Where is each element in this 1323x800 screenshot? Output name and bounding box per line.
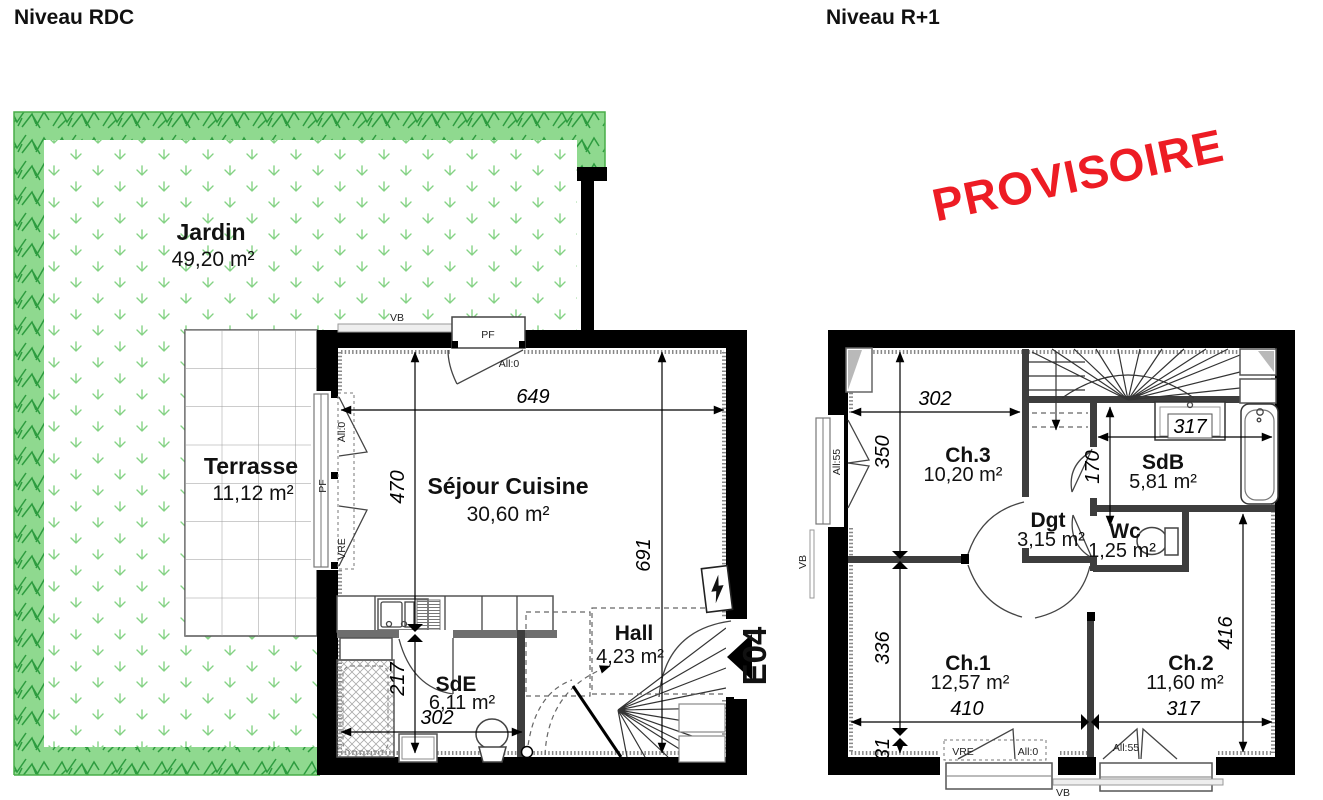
garden-wall-cap bbox=[577, 167, 607, 181]
hedge-top bbox=[14, 112, 605, 140]
jardin-area: 49,20 m² bbox=[172, 248, 255, 271]
sejour-label: Séjour Cuisine bbox=[427, 473, 588, 499]
shower bbox=[337, 660, 394, 757]
sde-niche bbox=[340, 638, 392, 660]
level-title-r1: Niveau R+1 bbox=[826, 6, 940, 30]
terrasse-area: 11,12 m² bbox=[212, 482, 293, 505]
dim-410: 410 bbox=[950, 698, 983, 720]
entry-cabinet-1 bbox=[679, 704, 725, 732]
hedge-left bbox=[14, 140, 44, 775]
dim-416: 416 bbox=[1215, 615, 1237, 649]
vb-left-label: VB bbox=[797, 555, 809, 569]
sdb-area: 5,81 m² bbox=[1129, 471, 1197, 493]
dim-470: 470 bbox=[387, 470, 409, 503]
stair-newel bbox=[522, 747, 533, 758]
all0-left-label: All:0 bbox=[336, 422, 348, 443]
all55-left-label: All:55 bbox=[831, 449, 843, 475]
floorplan-sheet: Niveau RDC Niveau R+1 bbox=[0, 0, 1323, 800]
garden-wall bbox=[581, 181, 594, 330]
sde-area: 6,11 m² bbox=[429, 692, 496, 714]
toilet-rdc bbox=[476, 719, 508, 749]
electrical-panel bbox=[701, 566, 732, 613]
vb-vent-top bbox=[338, 324, 452, 332]
sdb-wc-wall bbox=[1093, 505, 1275, 512]
floorplan-drawing: VB PF All:0 All:0 PF bbox=[0, 0, 1323, 800]
dim-691: 691 bbox=[633, 538, 655, 571]
vb-bottom-label: VB bbox=[1056, 787, 1070, 799]
hall-area: 4,23 m² bbox=[596, 646, 664, 668]
dim-317-sdb: 317 bbox=[1173, 416, 1207, 438]
jardin-label: Jardin bbox=[176, 219, 245, 245]
ch1-area: 12,57 m² bbox=[931, 672, 1010, 694]
r1-plan: All:55 VB VRE All:0 All:55 VB bbox=[797, 330, 1295, 799]
ch3-dgt-wall bbox=[1022, 349, 1029, 497]
sejour-area: 30,60 m² bbox=[467, 503, 550, 526]
vb-vent-left bbox=[810, 530, 814, 598]
wc-area: 1,25 m² bbox=[1088, 540, 1156, 562]
dim-170: 170 bbox=[1082, 450, 1104, 483]
vre-ch1-label: VRE bbox=[952, 746, 974, 758]
wc-side-wall bbox=[1182, 511, 1189, 572]
entry-cabinet-2 bbox=[679, 736, 725, 762]
dim-317-ch2: 317 bbox=[1166, 698, 1200, 720]
all0-ch1-label: All:0 bbox=[1018, 746, 1039, 758]
sdb-wall bbox=[1090, 403, 1097, 447]
dim-350: 350 bbox=[872, 435, 894, 468]
washing-machine bbox=[399, 734, 437, 762]
ch3-ch1-wall bbox=[848, 556, 968, 563]
terrasse-label: Terrasse bbox=[204, 453, 298, 479]
rdc-plan: VB PF All:0 All:0 PF bbox=[14, 112, 773, 775]
level-title-rdc: Niveau RDC bbox=[14, 6, 134, 30]
shelf-right bbox=[1240, 379, 1276, 403]
dim-302-r1: 302 bbox=[918, 388, 951, 410]
vb-vent-bottom bbox=[1053, 779, 1223, 785]
dim-31: 31 bbox=[872, 738, 894, 760]
pf-left-label: PF bbox=[317, 479, 329, 492]
entrance-label: E04 bbox=[736, 626, 773, 685]
all55-ch2-label: All:55 bbox=[1113, 742, 1139, 754]
ch2-area: 11,60 m² bbox=[1146, 672, 1224, 694]
ch1-ch2-wall bbox=[1087, 620, 1094, 757]
dgt-area: 3,15 m² bbox=[1017, 529, 1085, 551]
ch3-area: 10,20 m² bbox=[924, 464, 1003, 486]
all0-top-label: All:0 bbox=[499, 358, 520, 370]
vre-left-label: VRE bbox=[336, 538, 348, 560]
wc-ch2-wall bbox=[1093, 565, 1185, 572]
sde-side-wall bbox=[517, 630, 525, 757]
dim-649: 649 bbox=[516, 386, 549, 408]
pf-top-label: PF bbox=[481, 329, 494, 341]
dim-336: 336 bbox=[872, 630, 894, 664]
dim-217: 217 bbox=[387, 661, 409, 696]
bathtub bbox=[1241, 404, 1278, 504]
hedge-right bbox=[577, 112, 605, 167]
hedge-bottom bbox=[44, 747, 320, 775]
vb-top-label: VB bbox=[390, 312, 404, 324]
hall-label: Hall bbox=[615, 622, 654, 645]
